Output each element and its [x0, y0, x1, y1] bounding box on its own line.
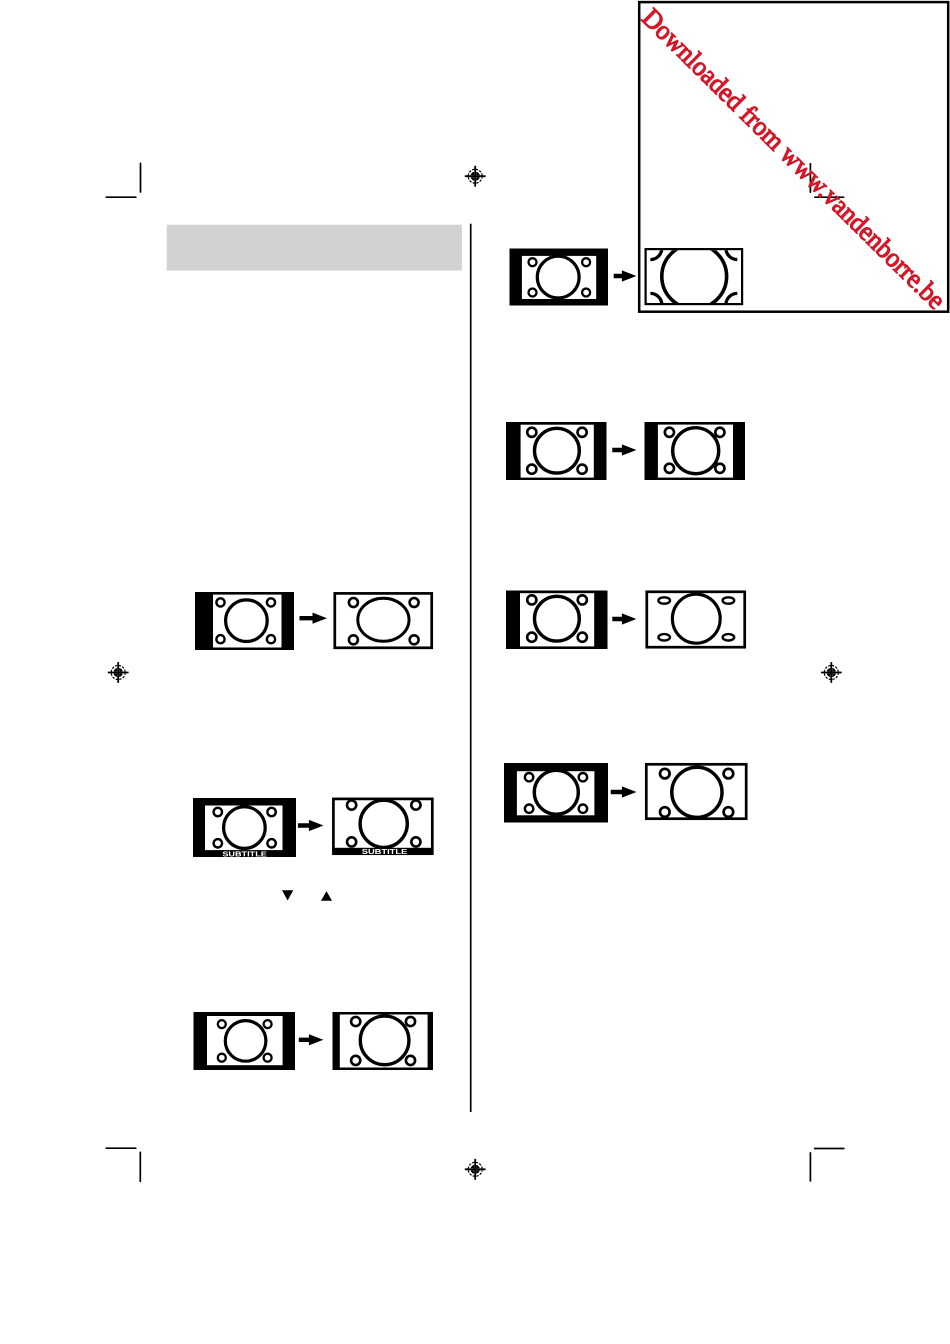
svg-text:SUBTITLE: SUBTITLE [362, 847, 408, 856]
svg-text:SUBTITLE: SUBTITLE [222, 849, 267, 858]
